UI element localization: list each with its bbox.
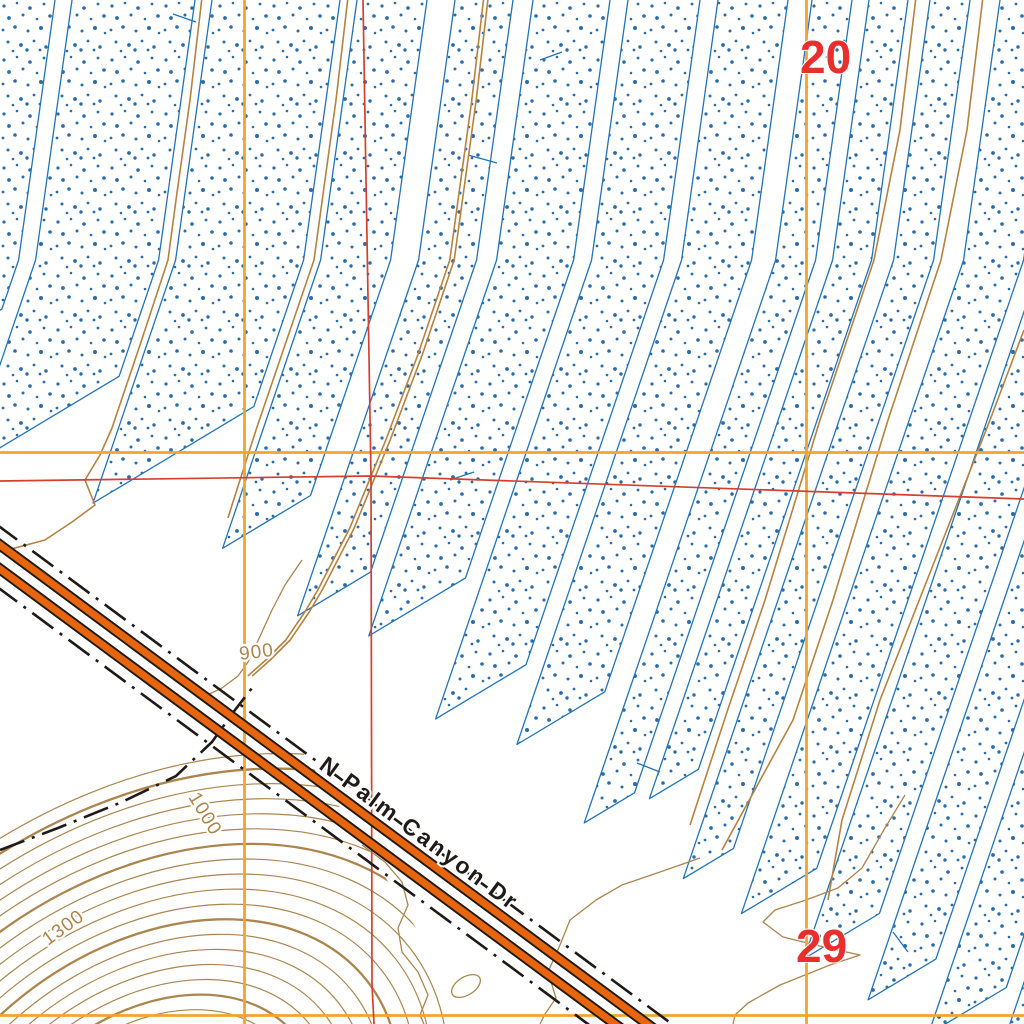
map-canvas[interactable]: 900 1000 1300 N Palm Canyon Dr 20 29 (0, 0, 1024, 1024)
section-label-20: 20 (800, 31, 851, 83)
section-label-29: 29 (796, 920, 847, 972)
contour-label-1000: 1000 (184, 789, 226, 839)
wash-bands (0, 0, 1024, 1024)
topo-map: 900 1000 1300 N Palm Canyon Dr 20 29 (0, 0, 1024, 1024)
road-label: N Palm Canyon Dr (315, 751, 524, 915)
contour-label-900: 900 (238, 640, 275, 665)
